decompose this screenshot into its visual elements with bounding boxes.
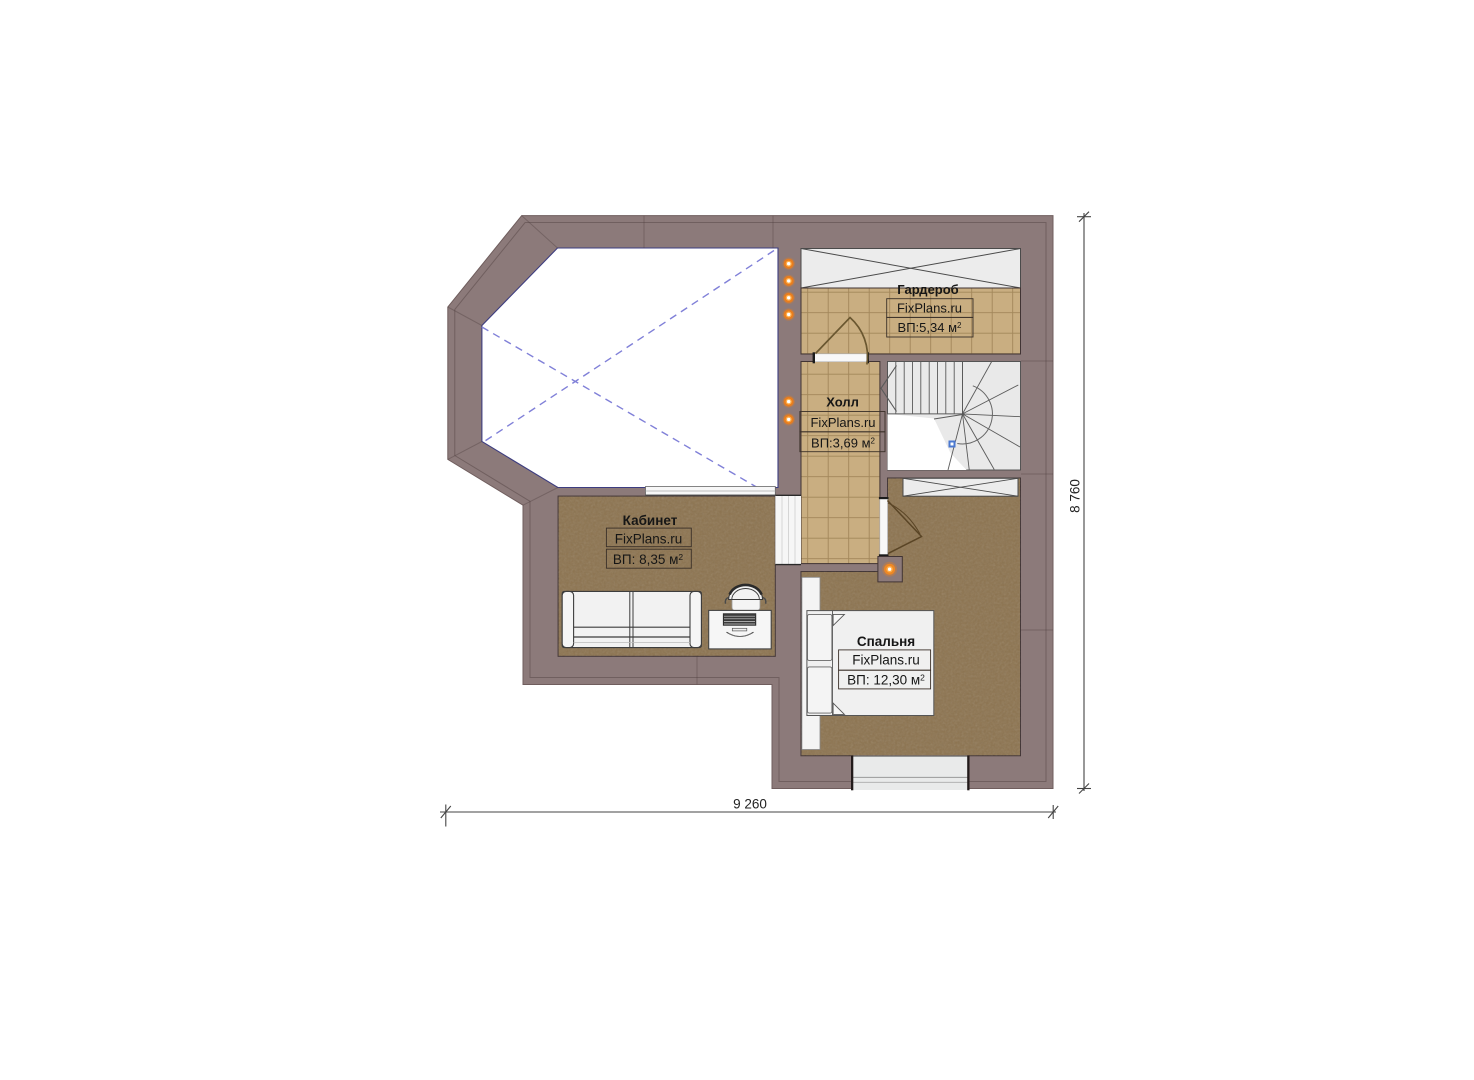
svg-text:FixPlans.ru: FixPlans.ru [810,415,875,430]
svg-text:FixPlans.ru: FixPlans.ru [897,301,962,316]
svg-text:ВП: 12,30 м2: ВП: 12,30 м2 [847,673,925,688]
svg-text:FixPlans.ru: FixPlans.ru [615,532,683,547]
svg-text:Спальня: Спальня [857,634,915,649]
svg-text:ВП:3,69 м2: ВП:3,69 м2 [811,436,875,451]
svg-text:ВП: 8,35 м2: ВП: 8,35 м2 [613,552,684,567]
svg-text:ВП:5,34 м2: ВП:5,34 м2 [898,320,962,335]
svg-text:8 760: 8 760 [1068,479,1083,513]
svg-text:9 260: 9 260 [733,797,767,812]
svg-text:Гардероб: Гардероб [897,282,958,297]
svg-text:Кабинет: Кабинет [623,513,678,528]
svg-text:Холл: Холл [826,395,859,410]
svg-text:FixPlans.ru: FixPlans.ru [852,653,920,668]
